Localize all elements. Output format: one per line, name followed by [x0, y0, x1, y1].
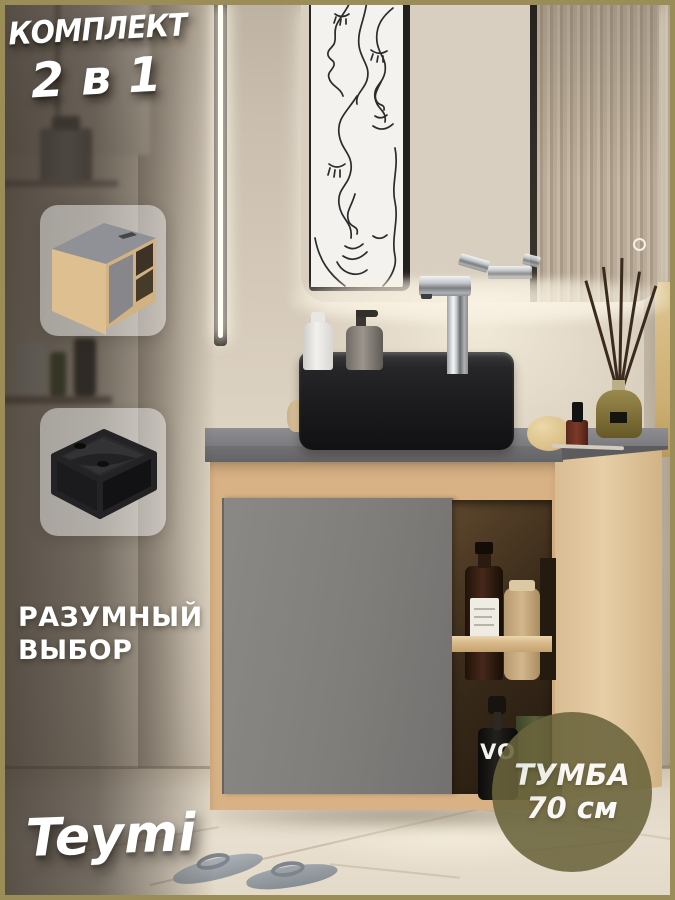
line-art-faces-drawing: [311, 0, 403, 287]
brand-logo: Teymi: [25, 803, 197, 869]
sink-product-card: [40, 408, 166, 536]
white-cosmetic-bottle: [303, 322, 333, 370]
bath-salt-jar: [504, 588, 540, 680]
tagline-line1: РАЗУМНЫЙ: [18, 601, 203, 634]
headline-line2: 2 в 1: [2, 45, 191, 111]
soap-dispenser: [346, 326, 383, 370]
badge-line2: 70 см: [526, 792, 617, 825]
tagline-line2: ВЫБОР: [18, 634, 203, 667]
line-art-poster: [309, 0, 410, 291]
cabinet-render: [40, 205, 166, 336]
dark-bottle: [540, 558, 556, 680]
bath-salt-jar-lid: [509, 580, 535, 591]
dropper-stem: [494, 712, 501, 730]
tagline: РАЗУМНЫЙ ВЫБОР: [18, 601, 203, 667]
tumba-size-badge: ТУМБА 70 см: [492, 712, 652, 872]
amber-bottle-cap: [475, 542, 493, 554]
promo-image-canvas: VO: [0, 0, 675, 900]
sink-render: [40, 408, 166, 536]
cabinet-door: [222, 498, 453, 794]
diffuser-label: [610, 412, 627, 423]
faucet-outlet: [421, 294, 432, 299]
cabinet-product-card: [40, 205, 166, 336]
shelf-divider: [452, 636, 552, 652]
badge-line1: ТУМБА: [514, 759, 630, 792]
led-lamp-light: [218, 4, 223, 338]
led-wall-lamp: [214, 0, 227, 346]
nail-polish-cap: [572, 402, 583, 422]
dispenser-spout: [356, 310, 378, 317]
faucet-spout: [419, 276, 471, 296]
headline: КОМПЛЕКТ 2 в 1: [0, 7, 190, 111]
